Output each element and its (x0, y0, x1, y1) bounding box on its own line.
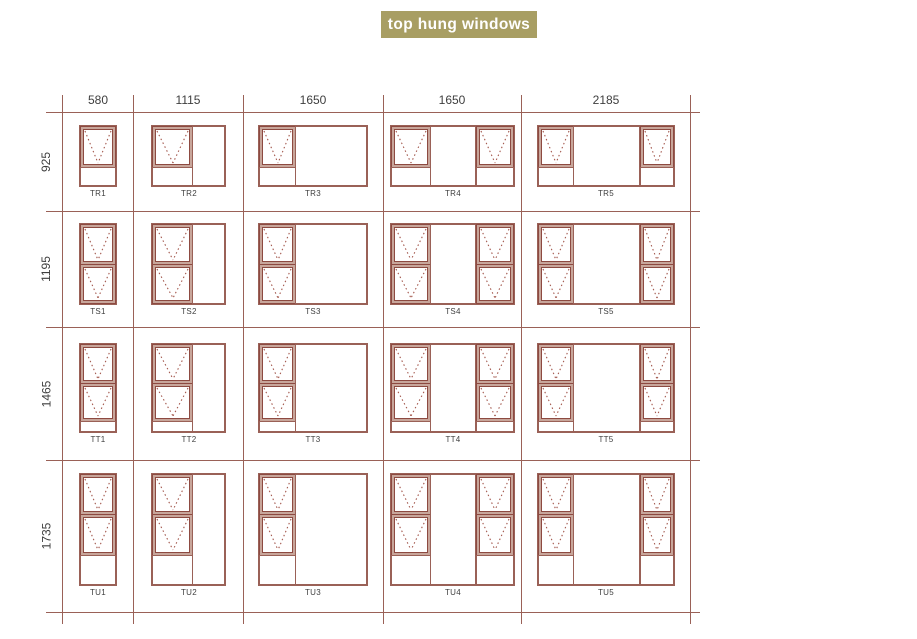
top-hung-vent-symbol (156, 478, 189, 511)
vent-sash-pane (640, 126, 674, 168)
fixed-pane (573, 474, 640, 585)
window-code-label: TT5 (576, 435, 636, 444)
vent-sash-pane (538, 474, 574, 515)
page: top hung windows 58011151650165021859251… (0, 0, 917, 639)
vent-sash-glass (541, 267, 571, 301)
grid-line-horizontal (46, 460, 700, 461)
vent-sash-pane (80, 344, 116, 384)
vent-sash-glass (479, 386, 511, 419)
vent-sash-glass (541, 227, 571, 262)
fixed-pane (476, 167, 514, 186)
vent-sash-glass (83, 386, 113, 419)
window-figure-TS2 (151, 223, 226, 305)
fixed-pane (192, 344, 225, 432)
top-hung-vent-symbol (156, 268, 189, 299)
top-hung-vent-symbol (395, 348, 427, 380)
top-hung-vent-symbol (480, 387, 510, 417)
fixed-pane (259, 167, 296, 186)
top-hung-vent-symbol (263, 478, 292, 511)
top-hung-vent-symbol (84, 348, 112, 380)
vent-sash-glass (262, 267, 293, 301)
vent-sash-pane (80, 126, 116, 168)
window-code-label: TT1 (68, 435, 128, 444)
vent-sash-glass (541, 386, 571, 419)
top-hung-vent-symbol (395, 387, 427, 417)
fixed-pane (391, 421, 431, 432)
vent-sash-pane (476, 344, 514, 384)
window-code-label: TT2 (159, 435, 219, 444)
fixed-pane (295, 474, 367, 585)
grid-line-horizontal (46, 612, 700, 613)
vent-sash-glass (83, 227, 113, 262)
vent-sash-glass (541, 129, 571, 165)
row-height-label: 1735 (34, 460, 58, 612)
vent-sash-glass (155, 386, 190, 419)
page-title: top hung windows (388, 16, 530, 34)
top-hung-vent-symbol (263, 387, 292, 417)
fixed-pane (152, 167, 193, 186)
window-figure-TT2 (151, 343, 226, 433)
window-figure-TR3 (258, 125, 368, 187)
grid-line-horizontal (46, 112, 700, 113)
vent-sash-pane (259, 344, 296, 384)
vent-sash-glass (643, 386, 671, 419)
vent-sash-pane (391, 344, 431, 384)
window-code-label: TR2 (159, 189, 219, 198)
vent-sash-glass (83, 129, 113, 165)
vent-sash-glass (541, 477, 571, 512)
vent-sash-glass (394, 477, 428, 512)
vent-sash-glass (643, 129, 671, 165)
fixed-pane (538, 421, 574, 432)
fixed-pane (430, 474, 476, 585)
window-code-label: TS1 (68, 307, 128, 316)
vent-sash-glass (643, 477, 671, 512)
top-hung-vent-symbol (156, 228, 189, 261)
vent-sash-pane (80, 224, 116, 265)
top-hung-vent-symbol (84, 268, 112, 299)
vent-sash-pane (152, 474, 193, 515)
top-hung-vent-symbol (84, 387, 112, 417)
window-figure-TT4 (390, 343, 515, 433)
window-code-label: TR5 (576, 189, 636, 198)
vent-sash-glass (541, 517, 571, 553)
vent-sash-pane (476, 224, 514, 265)
vent-sash-glass (262, 477, 293, 512)
top-hung-vent-symbol (542, 348, 570, 380)
window-figure-TR4 (390, 125, 515, 187)
row-height-label: 1465 (34, 327, 58, 460)
top-hung-vent-symbol (263, 518, 292, 551)
vent-sash-pane (152, 224, 193, 265)
top-hung-vent-symbol (480, 348, 510, 380)
window-code-label: TS2 (159, 307, 219, 316)
top-hung-vent-symbol (84, 130, 112, 164)
window-figure-TS5 (537, 223, 675, 305)
top-hung-vent-symbol (644, 228, 670, 261)
vent-sash-pane (152, 344, 193, 384)
fixed-pane (295, 344, 367, 432)
fixed-pane (192, 126, 225, 186)
fixed-pane (80, 167, 116, 186)
row-height-label-text: 1465 (39, 380, 53, 407)
top-hung-vent-symbol (542, 228, 570, 261)
vent-sash-pane (80, 264, 116, 304)
top-hung-vent-symbol (395, 518, 427, 551)
fixed-pane (430, 126, 476, 186)
vent-sash-pane (538, 383, 574, 422)
vent-sash-glass (541, 347, 571, 381)
vent-sash-glass (262, 386, 293, 419)
fixed-pane (192, 474, 225, 585)
vent-sash-glass (155, 129, 190, 165)
top-hung-vent-symbol (84, 518, 112, 551)
col-width-label: 2185 (566, 93, 646, 107)
fixed-pane (259, 421, 296, 432)
vent-sash-pane (538, 514, 574, 556)
vent-sash-pane (640, 344, 674, 384)
vent-sash-glass (155, 477, 190, 512)
top-hung-vent-symbol (156, 348, 189, 380)
window-figure-TR1 (79, 125, 117, 187)
vent-sash-glass (479, 477, 511, 512)
vent-sash-glass (479, 227, 511, 262)
vent-sash-glass (479, 267, 511, 301)
top-hung-vent-symbol (395, 478, 427, 511)
vent-sash-glass (155, 267, 190, 301)
top-hung-vent-symbol (480, 268, 510, 299)
top-hung-vent-symbol (156, 387, 189, 417)
vent-sash-pane (80, 514, 116, 556)
vent-sash-glass (394, 227, 428, 262)
top-hung-vent-symbol (480, 478, 510, 511)
window-figure-TT5 (537, 343, 675, 433)
fixed-pane (391, 555, 431, 585)
window-code-label: TS4 (423, 307, 483, 316)
vent-sash-glass (394, 517, 428, 553)
vent-sash-pane (476, 126, 514, 168)
vent-sash-glass (83, 477, 113, 512)
fixed-pane (295, 224, 367, 304)
fixed-pane (476, 555, 514, 585)
top-hung-vent-symbol (263, 130, 292, 164)
window-figure-TR2 (151, 125, 226, 187)
vent-sash-glass (479, 347, 511, 381)
fixed-pane (192, 224, 225, 304)
window-code-label: TS3 (283, 307, 343, 316)
vent-sash-glass (83, 347, 113, 381)
vent-sash-pane (538, 126, 574, 168)
vent-sash-glass (643, 227, 671, 262)
vent-sash-pane (391, 514, 431, 556)
row-height-label-text: 1735 (39, 523, 53, 550)
top-hung-vent-symbol (395, 130, 427, 164)
vent-sash-glass (155, 347, 190, 381)
window-figure-TU4 (390, 473, 515, 586)
grid-line-horizontal (46, 327, 700, 328)
col-width-label: 1650 (412, 93, 492, 107)
top-hung-vent-symbol (263, 268, 292, 299)
top-hung-vent-symbol (644, 478, 670, 511)
top-hung-vent-symbol (84, 228, 112, 261)
top-hung-vent-symbol (480, 518, 510, 551)
vent-sash-glass (155, 227, 190, 262)
vent-sash-pane (152, 514, 193, 556)
top-hung-vent-symbol (542, 478, 570, 511)
vent-sash-pane (391, 383, 431, 422)
top-hung-vent-symbol (263, 228, 292, 261)
top-hung-vent-symbol (156, 518, 189, 551)
vent-sash-pane (391, 474, 431, 515)
fixed-pane (573, 224, 640, 304)
window-code-label: TU1 (68, 588, 128, 597)
window-figure-TS1 (79, 223, 117, 305)
top-hung-vent-symbol (395, 228, 427, 261)
fixed-pane (573, 126, 640, 186)
top-hung-vent-symbol (542, 130, 570, 164)
fixed-pane (152, 421, 193, 432)
vent-sash-pane (259, 264, 296, 304)
window-code-label: TU5 (576, 588, 636, 597)
window-figure-TU2 (151, 473, 226, 586)
fixed-pane (430, 224, 476, 304)
vent-sash-glass (262, 517, 293, 553)
vent-sash-pane (476, 383, 514, 422)
vent-sash-glass (479, 129, 511, 165)
vent-sash-pane (391, 224, 431, 265)
top-hung-vent-symbol (644, 268, 670, 299)
vent-sash-pane (538, 264, 574, 304)
top-hung-vent-symbol (480, 228, 510, 261)
top-hung-vent-symbol (542, 268, 570, 299)
vent-sash-pane (476, 264, 514, 304)
fixed-pane (538, 555, 574, 585)
vent-sash-glass (479, 517, 511, 553)
vent-sash-pane (259, 514, 296, 556)
window-figure-TT1 (79, 343, 117, 433)
window-figure-TU5 (537, 473, 675, 586)
vent-sash-pane (80, 383, 116, 422)
grid-line-vertical (243, 95, 244, 624)
fixed-pane (391, 167, 431, 186)
window-code-label: TU2 (159, 588, 219, 597)
top-hung-vent-symbol (644, 518, 670, 551)
vent-sash-glass (643, 347, 671, 381)
vent-sash-glass (394, 386, 428, 419)
window-figure-TU1 (79, 473, 117, 586)
window-code-label: TT4 (423, 435, 483, 444)
fixed-pane (640, 421, 674, 432)
top-hung-vent-symbol (644, 130, 670, 164)
window-figure-TU3 (258, 473, 368, 586)
grid-line-vertical (690, 95, 691, 624)
window-figure-TR5 (537, 125, 675, 187)
window-code-label: TR1 (68, 189, 128, 198)
fixed-pane (476, 421, 514, 432)
vent-sash-pane (259, 126, 296, 168)
vent-sash-pane (476, 474, 514, 515)
vent-sash-glass (394, 347, 428, 381)
grid-line-vertical (383, 95, 384, 624)
vent-sash-pane (640, 514, 674, 556)
vent-sash-pane (152, 264, 193, 304)
window-code-label: TS5 (576, 307, 636, 316)
top-hung-vent-symbol (263, 348, 292, 380)
top-hung-vent-symbol (84, 478, 112, 511)
vent-sash-pane (640, 264, 674, 304)
vent-sash-glass (83, 517, 113, 553)
vent-sash-glass (643, 267, 671, 301)
fixed-pane (573, 344, 640, 432)
vent-sash-glass (262, 227, 293, 262)
grid-line-vertical (521, 95, 522, 624)
vent-sash-pane (259, 383, 296, 422)
vent-sash-pane (538, 344, 574, 384)
window-figure-TS3 (258, 223, 368, 305)
col-width-label: 580 (58, 93, 138, 107)
top-hung-vent-symbol (480, 130, 510, 164)
fixed-pane (640, 555, 674, 585)
vent-sash-pane (259, 474, 296, 515)
vent-sash-pane (391, 264, 431, 304)
vent-sash-pane (538, 224, 574, 265)
top-hung-vent-symbol (542, 518, 570, 551)
col-width-label: 1115 (148, 93, 228, 107)
fixed-pane (295, 126, 367, 186)
vent-sash-pane (476, 514, 514, 556)
window-code-label: TU3 (283, 588, 343, 597)
row-height-label: 1195 (34, 211, 58, 327)
top-hung-vent-symbol (644, 387, 670, 417)
fixed-pane (80, 421, 116, 432)
title-banner: top hung windows (381, 11, 537, 38)
grid-line-horizontal (46, 211, 700, 212)
top-hung-vent-symbol (156, 130, 189, 164)
vent-sash-glass (83, 267, 113, 301)
grid-line-vertical (62, 95, 63, 624)
vent-sash-pane (640, 474, 674, 515)
window-code-label: TU4 (423, 588, 483, 597)
vent-sash-pane (152, 126, 193, 168)
window-code-label: TR4 (423, 189, 483, 198)
vent-sash-glass (155, 517, 190, 553)
window-figure-TS4 (390, 223, 515, 305)
row-height-label-text: 1195 (39, 256, 53, 282)
vent-sash-glass (262, 347, 293, 381)
vent-sash-pane (391, 126, 431, 168)
row-height-label-text: 925 (39, 151, 53, 171)
vent-sash-pane (80, 474, 116, 515)
fixed-pane (640, 167, 674, 186)
vent-sash-pane (152, 383, 193, 422)
fixed-pane (430, 344, 476, 432)
fixed-pane (80, 555, 116, 585)
fixed-pane (259, 555, 296, 585)
vent-sash-glass (262, 129, 293, 165)
fixed-pane (152, 555, 193, 585)
vent-sash-pane (640, 383, 674, 422)
grid-line-vertical (133, 95, 134, 624)
top-hung-vent-symbol (542, 387, 570, 417)
vent-sash-pane (259, 224, 296, 265)
window-figure-TT3 (258, 343, 368, 433)
top-hung-vent-symbol (644, 348, 670, 380)
vent-sash-glass (394, 129, 428, 165)
row-height-label: 925 (34, 112, 58, 211)
window-code-label: TT3 (283, 435, 343, 444)
window-code-label: TR3 (283, 189, 343, 198)
vent-sash-pane (640, 224, 674, 265)
vent-sash-glass (643, 517, 671, 553)
top-hung-vent-symbol (395, 268, 427, 299)
vent-sash-glass (394, 267, 428, 301)
fixed-pane (538, 167, 574, 186)
col-width-label: 1650 (273, 93, 353, 107)
